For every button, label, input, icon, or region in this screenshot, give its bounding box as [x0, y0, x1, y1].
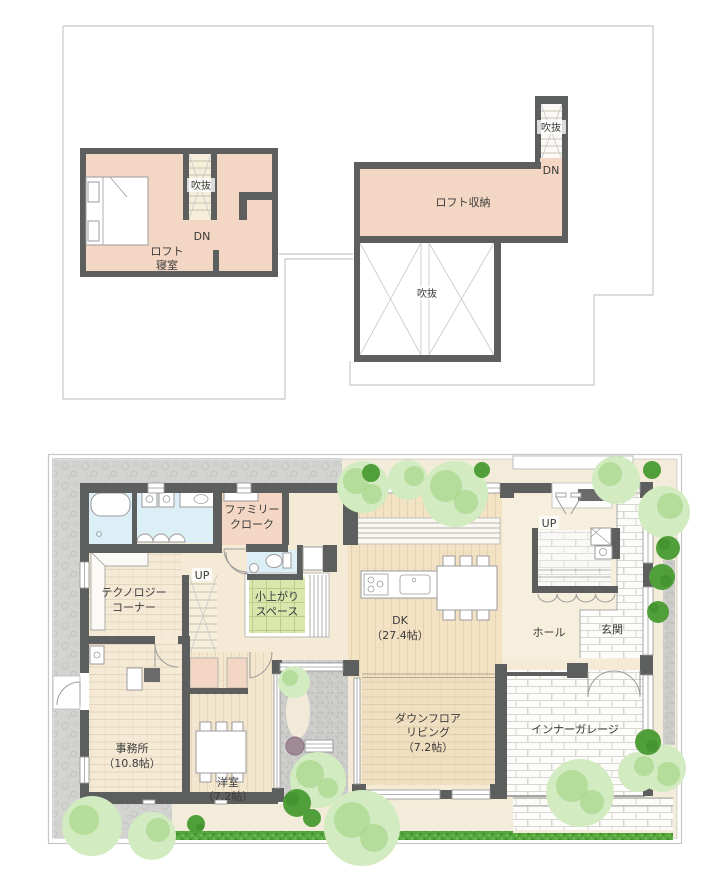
shrub — [362, 464, 380, 482]
room-loft-storage: 吹抜 吹抜 DN ロフト収納 — [354, 96, 568, 362]
floor-plan-page: 吹抜 DN ロフト 寝室 — [0, 0, 720, 882]
bench — [305, 740, 333, 752]
closet — [303, 547, 323, 570]
office-cabinet — [144, 668, 160, 682]
loft-storage-void-label: 吹抜 — [541, 121, 561, 134]
loft-plan: 吹抜 DN ロフト 寝室 — [63, 26, 653, 399]
floor-plan-drawing: 吹抜 DN ロフト 寝室 — [0, 0, 720, 882]
small-basin — [250, 564, 259, 573]
tree — [618, 752, 658, 792]
closet — [227, 658, 247, 688]
stairs-hall — [532, 528, 620, 602]
tree — [638, 486, 690, 538]
courtyard-tree-symbol — [286, 737, 304, 755]
living-label-2: リビング — [406, 725, 450, 739]
stairs-center-up-label: UP — [195, 569, 210, 582]
shrub — [649, 564, 675, 590]
shrub — [303, 809, 321, 827]
small-basin — [595, 546, 612, 559]
loft-storage-dn-label: DN — [543, 164, 560, 177]
bed — [86, 177, 148, 245]
shrub — [635, 729, 661, 755]
loft-bedroom-void-label: 吹抜 — [191, 179, 211, 192]
room-washroom — [137, 491, 222, 543]
office-desk — [127, 668, 142, 690]
hall-label: ホール — [533, 626, 566, 639]
tree — [546, 759, 614, 827]
living-label-1: ダウンフロア — [395, 711, 461, 725]
shrub — [643, 461, 661, 479]
tree — [62, 796, 122, 856]
tech-corner-label-1: テクノロジー — [101, 586, 166, 599]
tech-corner-label-2: コーナー — [112, 601, 156, 614]
hedge-row — [513, 833, 673, 840]
room-dk — [348, 491, 502, 677]
western-room-label-1: 洋室 — [217, 775, 239, 789]
loft-bedroom-dn-label: DN — [194, 230, 211, 243]
loft-bedroom-name-2: 寝室 — [156, 258, 178, 272]
closet — [190, 658, 218, 688]
family-cloak-label-2: クローク — [230, 518, 274, 531]
shrub — [647, 601, 669, 623]
office-basin — [90, 646, 104, 664]
room-office — [89, 644, 182, 802]
room-loft-bedroom: 吹抜 DN ロフト 寝室 — [80, 148, 278, 277]
tree — [128, 812, 176, 860]
dk-label-2: （27.4帖） — [371, 629, 429, 642]
western-table — [196, 722, 246, 782]
office-label-1: 事務所 — [116, 741, 149, 755]
loft-bedroom-name-1: ロフト — [151, 245, 184, 258]
bathtub — [91, 493, 130, 516]
main-plan: ファミリー クローク テクノロジー コーナー UP 小上がり スペース DK （… — [49, 455, 691, 867]
office-label-2: （10.8帖） — [103, 757, 161, 770]
window-bench — [354, 518, 500, 544]
western-room-label-2: （7.2帖） — [203, 790, 254, 803]
void-label: 吹抜 — [417, 287, 437, 300]
koagari-label-1: 小上がり — [255, 589, 299, 603]
genkan-label: 玄関 — [601, 622, 623, 636]
tree — [592, 456, 640, 504]
room-bathroom — [89, 491, 132, 545]
stairs-hall-up-label: UP — [542, 517, 557, 530]
shrub — [656, 536, 680, 560]
office-entrance — [53, 676, 80, 709]
shrub — [187, 815, 205, 833]
tree — [337, 461, 389, 513]
koagari-label-2: スペース — [256, 605, 299, 618]
toilet-tank — [283, 553, 291, 568]
kitchen-counter — [361, 571, 437, 598]
tree — [324, 790, 400, 866]
toilet-bowl — [266, 555, 282, 568]
dining-table — [437, 556, 497, 620]
tree — [278, 666, 310, 698]
living-label-3: （7.2帖） — [403, 741, 454, 754]
garage-label: インナーガレージ — [531, 723, 619, 736]
dk-label-1: DK — [392, 614, 408, 627]
family-cloak-label-1: ファミリー — [225, 503, 280, 516]
loft-storage-name: ロフト収納 — [436, 196, 491, 209]
folding-door — [137, 534, 185, 542]
shrub — [474, 462, 490, 478]
void-large: 吹抜 — [354, 243, 501, 362]
